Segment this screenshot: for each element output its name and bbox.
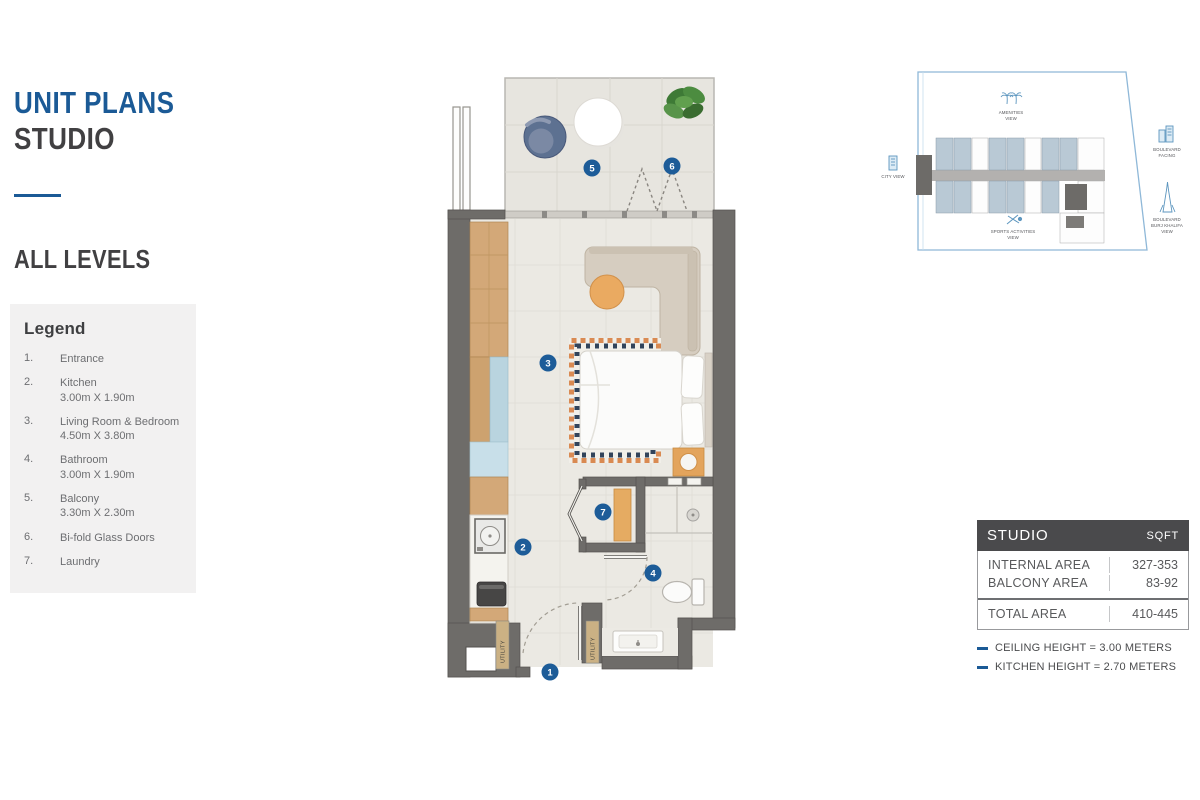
legend-title: Legend [24,319,196,339]
svg-text:3: 3 [545,358,550,369]
shower-head [687,509,699,521]
marker-bathroom: 4 [645,565,662,582]
kitchen-sink [475,519,505,553]
buildings-icon [1159,126,1173,142]
burj-khalifa-view: BOULEVARD BURJ KHALIFA VIEW [1151,182,1183,234]
svg-text:2: 2 [520,542,525,553]
legend-item-kitchen: 2. Kitchen3.00m X 1.90m [24,376,196,405]
area-table-header: STUDIO SQFT [977,520,1189,551]
burj-khalifa-icon [1160,182,1175,212]
marker-living-bedroom: 3 [540,355,557,372]
balcony-armchair [524,116,566,158]
svg-text:CITY VIEW: CITY VIEW [881,174,905,179]
svg-text:VIEW: VIEW [1005,116,1017,121]
nightstand [673,448,704,476]
floor-plan: UTILITY UTILITY 1 2 3 [430,55,760,705]
boulevard-facing: BOULEVARD FACING [1153,126,1181,158]
svg-text:6: 6 [669,161,674,172]
marker-entrance: 1 [542,664,559,681]
key-plan: AMENITIES VIEW CITY VIEW SPORTS ACTIVITI… [870,58,1195,258]
area-table-title: STUDIO [987,527,1048,544]
marker-bifold-doors: 6 [664,158,681,175]
page-subtitle: STUDIO [14,122,174,156]
legend-item-living-bedroom: 3. Living Room & Bedroom4.50m X 3.80m [24,415,196,444]
note-dash [977,647,988,650]
svg-text:4: 4 [650,568,656,579]
vanity-sink [602,628,678,656]
title-block: UNIT PLANS STUDIO [14,86,205,156]
table-row-balcony-area: BALCONY AREA 83-92 [978,574,1188,592]
toilet [663,579,705,605]
svg-text:FACING: FACING [1159,153,1176,158]
legend-item-bathroom: 4. Bathroom3.00m X 1.90m [24,453,196,482]
note-ceiling-height: CEILING HEIGHT = 3.00 METERS [977,642,1176,654]
wall-notch [466,647,496,671]
svg-text:BOULEVARD: BOULEVARD [1153,147,1181,152]
lamp [680,454,697,471]
svg-text:5: 5 [589,163,595,174]
note-dash [977,666,988,669]
coffee-table [590,275,624,309]
svg-text:1: 1 [547,667,553,678]
section-title: ALL LEVELS [14,244,150,275]
area-table-unit: SQFT [1146,530,1179,542]
legend-item-entrance: 1. Entrance [24,352,196,366]
wardrobe-kitchen-cabinets [470,222,508,515]
utility-strip-right: UTILITY [586,621,599,663]
marker-kitchen: 2 [515,539,532,556]
utility-strip-left: UTILITY [496,621,509,669]
kitchen-appliance [477,582,506,606]
table-row-internal-area: INTERNAL AREA 327-353 [978,556,1188,574]
legend-item-balcony: 5. Balcony3.30m X 2.30m [24,492,196,521]
marker-balcony: 5 [584,160,601,177]
page-title: UNIT PLANS [14,86,174,120]
svg-text:SPORTS ACTIVITIES: SPORTS ACTIVITIES [991,229,1036,234]
unit-plan-page: { "header": { "title_line1": "UNIT PLANS… [0,0,1200,800]
title-rule [14,194,61,197]
legend-item-laundry: 7. Laundry [24,555,196,569]
city-view: CITY VIEW [881,156,905,179]
svg-text:VIEW: VIEW [1007,235,1019,240]
kitchen-counter [470,515,508,623]
svg-text:AMENITIES: AMENITIES [999,110,1024,115]
svg-text:7: 7 [600,507,605,518]
utility-label: UTILITY [591,637,597,660]
legend-item-bifold-doors: 6. Bi-fold Glass Doors [24,531,196,545]
area-table-body: INTERNAL AREA 327-353 BALCONY AREA 83-92… [977,551,1189,630]
svg-text:BOULEVARD: BOULEVARD [1153,217,1181,222]
svg-text:BURJ KHALIFA: BURJ KHALIFA [1151,223,1183,228]
table-row-total-area: TOTAL AREA 410-445 [978,598,1188,629]
marker-laundry: 7 [595,504,612,521]
utility-label: UTILITY [501,640,507,663]
area-table: STUDIO SQFT INTERNAL AREA 327-353 BALCON… [977,520,1189,630]
note-kitchen-height: KITCHEN HEIGHT = 2.70 METERS [977,661,1176,673]
legend-panel: Legend 1. Entrance 2. Kitchen3.00m X 1.9… [10,304,196,593]
pipes [453,107,470,211]
svg-text:VIEW: VIEW [1161,229,1173,234]
height-notes: CEILING HEIGHT = 3.00 METERS KITCHEN HEI… [977,642,1176,680]
building-icon [889,156,897,170]
